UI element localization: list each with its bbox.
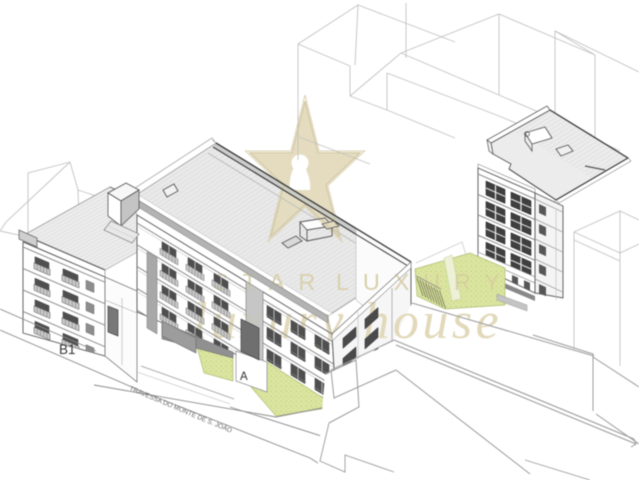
svg-text:A: A — [240, 371, 248, 383]
svg-text:B1: B1 — [59, 342, 76, 357]
svg-text:TRAVESSA DO MONTE DE S. JOÃO: TRAVESSA DO MONTE DE S. JOÃO — [128, 384, 233, 435]
svg-text:STAR: STAR — [213, 269, 329, 295]
svg-text:LUXURY: LUXURY — [336, 269, 514, 295]
svg-text:luxury house: luxury house — [193, 293, 502, 350]
